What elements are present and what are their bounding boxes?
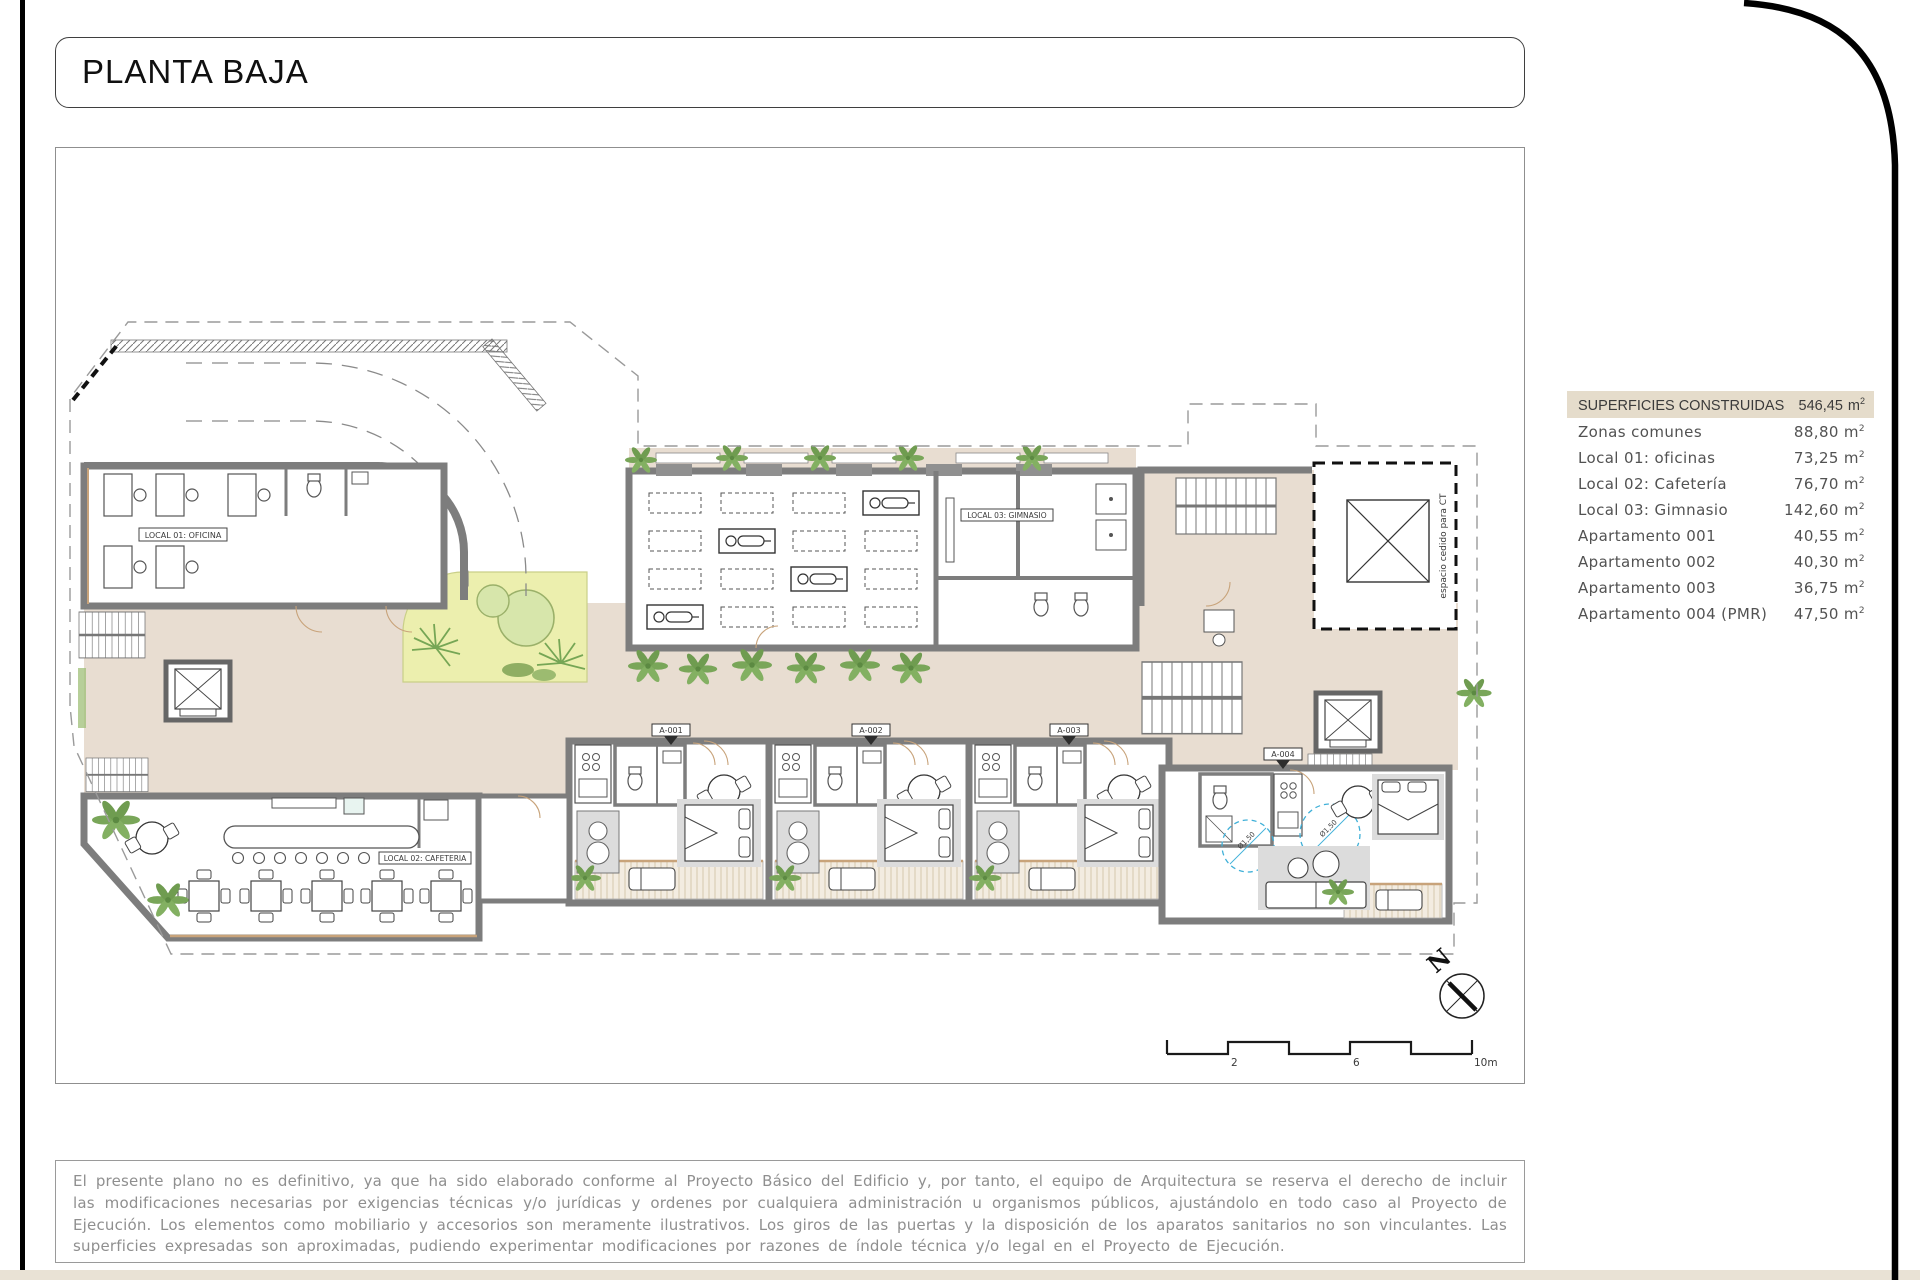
surface-row: Apartamento 004 (PMR) 47,50m2 [1567,600,1874,626]
scale-tick-6: 6 [1353,1057,1360,1069]
surfaces-table: SUPERFICIES CONSTRUIDAS 546,45m2 Zonas c… [1567,391,1874,626]
gym-local-03: LOCAL 03: GIMNASIO [629,464,1136,648]
cafeteria-local-02: LOCAL 02: CAFETERIA [84,796,569,938]
surface-row: Local 01: oficinas 73,25m2 [1567,444,1874,470]
room-label-ct: espacio cedido para CT [1439,493,1449,599]
office-local-01: LOCAL 01: OFICINA [84,466,444,632]
svg-text:A-001: A-001 [659,726,682,735]
sheet: PLANTA BAJA [0,0,1920,1280]
floor-plan-box: LOCAL 01: OFICINA [55,147,1525,1084]
floor-plan: LOCAL 01: OFICINA [56,148,1522,1081]
surface-row: Apartamento 003 36,75m2 [1567,574,1874,600]
apartments-row [569,741,1169,903]
page-frame-left [20,0,25,1280]
scale-tick-10m: 10m [1474,1057,1498,1069]
surface-row: Apartamento 002 40,30m2 [1567,548,1874,574]
svg-text:A-003: A-003 [1057,726,1080,735]
surface-row: Local 03: Gimnasio 142,60m2 [1567,496,1874,522]
apartment-004-pmr: Ø1,50 Ø1,50 [1162,768,1449,921]
disclaimer-box: El presente plano no es definitivo, ya q… [55,1160,1525,1263]
surface-row: Zonas comunes 88,80m2 [1567,418,1874,444]
disclaimer-text: El presente plano no es definitivo, ya q… [56,1161,1524,1263]
title-box: PLANTA BAJA [55,37,1525,108]
scale-tick-2: 2 [1231,1057,1238,1069]
elevator-left [166,662,230,720]
page-title: PLANTA BAJA [56,38,1524,105]
surfaces-rows: Zonas comunes 88,80m2 Local 01: oficinas… [1567,418,1874,626]
surface-row: Local 02: Cafetería 76,70m2 [1567,470,1874,496]
room-label-local01: LOCAL 01: OFICINA [145,531,222,540]
north-label: N [1421,942,1456,978]
svg-text:A-004: A-004 [1271,750,1294,759]
room-label-local02: LOCAL 02: CAFETERIA [384,854,467,863]
svg-text:A-002: A-002 [859,726,882,735]
surfaces-header-row: SUPERFICIES CONSTRUIDAS 546,45m2 [1567,391,1874,418]
elevator-right [1316,693,1380,751]
scale-bar: 2 6 10m [1167,1040,1498,1069]
surface-row: Apartamento 001 40,55m2 [1567,522,1874,548]
page-bottom-strip [0,1270,1920,1280]
room-label-local03: LOCAL 03: GIMNASIO [967,511,1046,520]
